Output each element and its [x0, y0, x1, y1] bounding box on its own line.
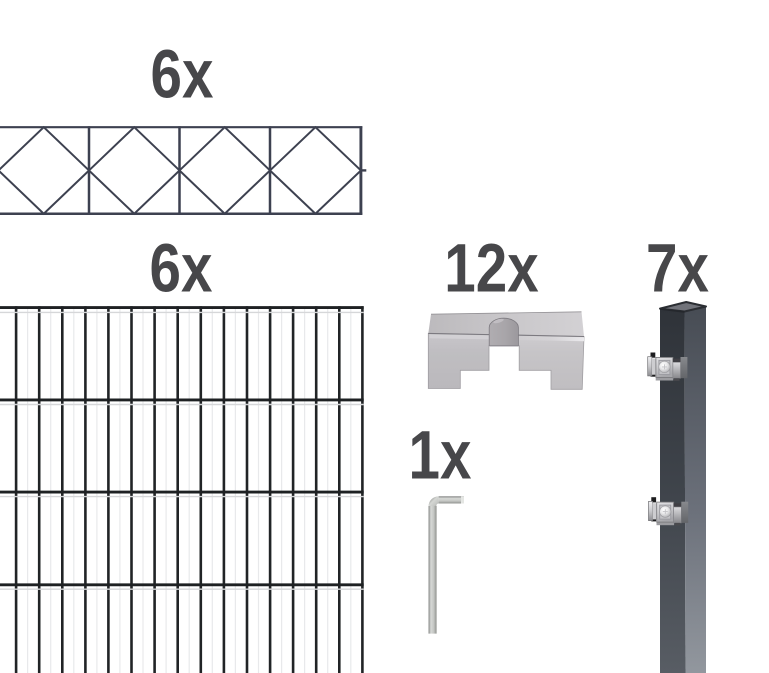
- svg-text:6x: 6x: [151, 36, 214, 113]
- svg-text:6x: 6x: [150, 230, 213, 307]
- svg-text:12x: 12x: [444, 230, 538, 307]
- svg-text:1x: 1x: [409, 417, 472, 494]
- svg-text:7x: 7x: [646, 230, 709, 307]
